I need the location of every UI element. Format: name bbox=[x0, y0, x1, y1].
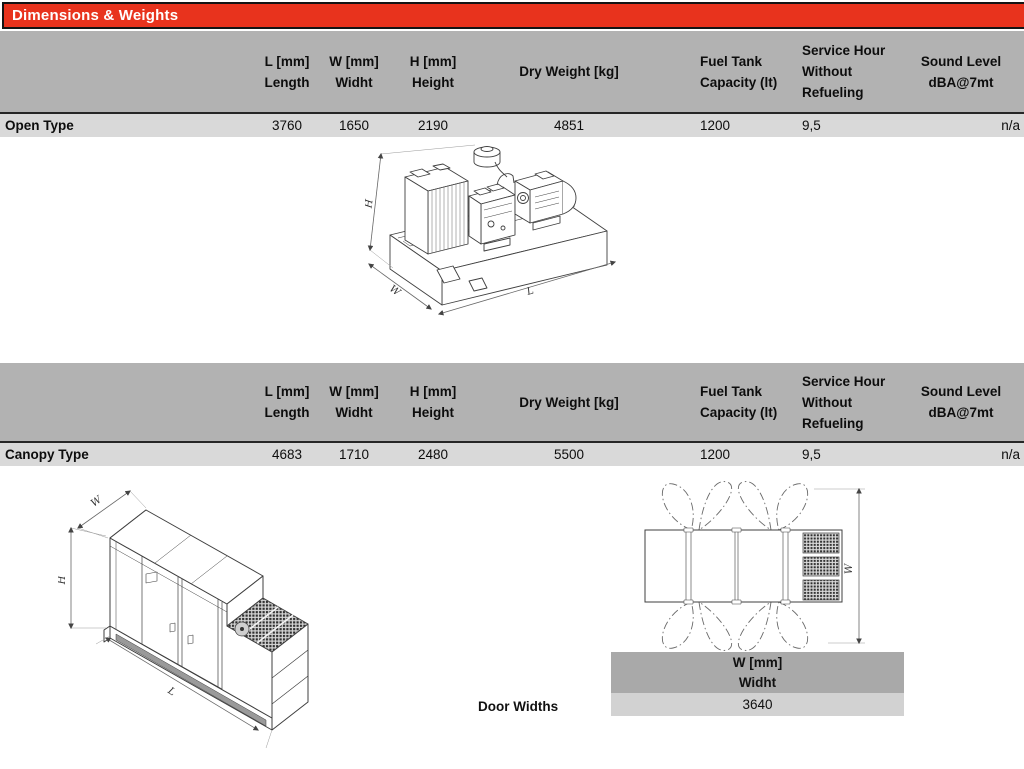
title-bar: Dimensions & Weights bbox=[2, 2, 1024, 29]
open-sound-level-value: n/a bbox=[903, 114, 1020, 137]
open-length-value: 3760 bbox=[252, 114, 322, 137]
col-service-hour-header: Service Hour Without Refueling bbox=[802, 363, 907, 441]
col-fuel-tank-header: Fuel Tank Capacity (lt) bbox=[700, 363, 810, 441]
canopy-length-value: 4683 bbox=[252, 443, 322, 466]
canopy-width-value: 1710 bbox=[319, 443, 389, 466]
open-type-row-label: Open Type bbox=[5, 114, 245, 137]
canopy-sound-level-value: n/a bbox=[903, 443, 1020, 466]
open-fuel-tank-value: 1200 bbox=[700, 114, 810, 137]
canopy-dry-weight-value: 5500 bbox=[490, 443, 648, 466]
canopy-body bbox=[104, 510, 308, 730]
canopy-plan-outline bbox=[645, 528, 842, 604]
canopy-generator-drawing: W H L bbox=[58, 478, 358, 760]
col-dry-weight-header: Dry Weight [kg] bbox=[490, 363, 648, 441]
canopy-type-table-header: L [mm] Length W [mm] Widht H [mm] Height… bbox=[0, 363, 1024, 441]
col-height-header: H [mm] Height bbox=[397, 31, 469, 112]
col-dry-weight-header: Dry Weight [kg] bbox=[490, 31, 648, 112]
door-widths-value: 3640 bbox=[611, 693, 904, 716]
page-root: Dimensions & Weights L [mm] Length W [mm… bbox=[0, 0, 1024, 769]
door-widths-label: Door Widths bbox=[478, 699, 558, 714]
canopy-service-hour-value: 9,5 bbox=[802, 443, 907, 466]
col-sound-level-header: Sound Level dBA@7mt bbox=[903, 31, 1019, 112]
dim-label-h: H bbox=[58, 575, 68, 585]
open-dry-weight-value: 4851 bbox=[490, 114, 648, 137]
open-service-hour-value: 9,5 bbox=[802, 114, 907, 137]
open-width-value: 1650 bbox=[319, 114, 389, 137]
canopy-type-row-label: Canopy Type bbox=[5, 443, 245, 466]
col-service-hour-header: Service Hour Without Refueling bbox=[802, 31, 907, 112]
open-type-table-row: Open Type 3760 1650 2190 4851 1200 9,5 n… bbox=[0, 112, 1024, 137]
dim-label-w: W bbox=[89, 494, 104, 509]
door-widths-table-header: W [mm] Widht bbox=[611, 652, 904, 693]
door-swing-top-view-drawing: W bbox=[618, 473, 908, 653]
col-length-header: L [mm] Length bbox=[252, 363, 322, 441]
open-type-table-header: L [mm] Length W [mm] Widht H [mm] Height… bbox=[0, 31, 1024, 112]
col-fuel-tank-header: Fuel Tank Capacity (lt) bbox=[700, 31, 810, 112]
dim-label-l: L bbox=[165, 685, 178, 699]
dim-label-l: L bbox=[525, 285, 536, 298]
canopy-height-value: 2480 bbox=[397, 443, 469, 466]
dim-label-w: W bbox=[387, 284, 402, 299]
canopy-type-table-row: Canopy Type 4683 1710 2480 5500 1200 9,5… bbox=[0, 441, 1024, 466]
col-width-header: W [mm] Widht bbox=[319, 363, 389, 441]
open-type-generator-drawing: H W L bbox=[365, 140, 625, 346]
dim-label-w: W bbox=[844, 563, 855, 574]
col-width-header: W [mm] Widht bbox=[319, 31, 389, 112]
open-genset-body bbox=[390, 147, 607, 306]
col-height-header: H [mm] Height bbox=[397, 363, 469, 441]
col-sound-level-header: Sound Level dBA@7mt bbox=[903, 363, 1019, 441]
page-title: Dimensions & Weights bbox=[12, 7, 178, 24]
col-length-header: L [mm] Length bbox=[252, 31, 322, 112]
dim-label-h: H bbox=[365, 198, 376, 209]
open-height-value: 2190 bbox=[397, 114, 469, 137]
canopy-fuel-tank-value: 1200 bbox=[700, 443, 810, 466]
